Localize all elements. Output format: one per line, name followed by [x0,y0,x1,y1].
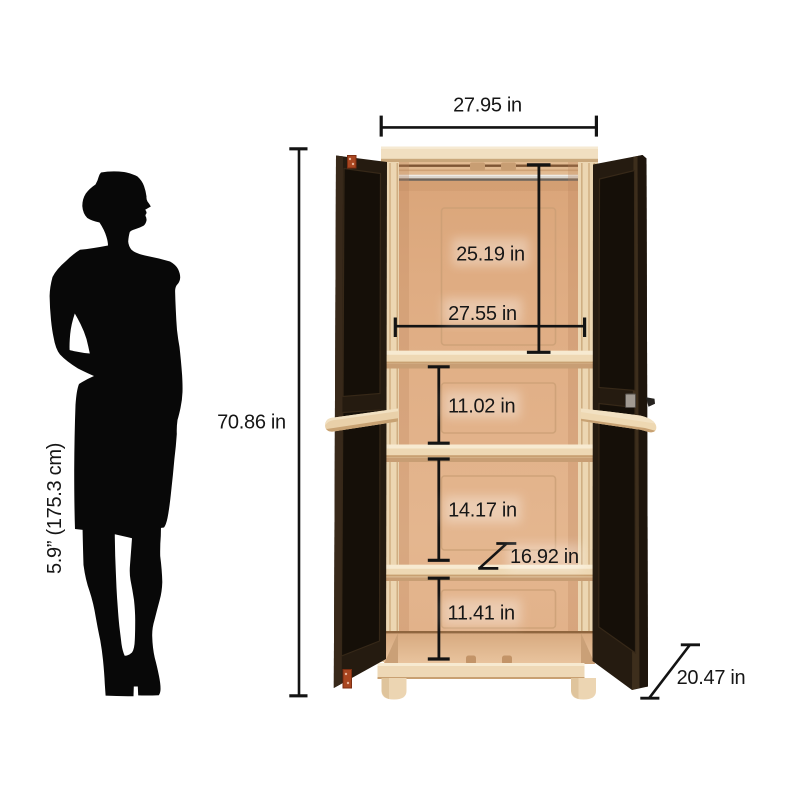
svg-text:20.47 in: 20.47 in [677,667,746,689]
svg-text:11.41 in: 11.41 in [448,603,515,625]
svg-text:16.92 in: 16.92 in [510,546,579,568]
svg-text:11.02 in: 11.02 in [448,396,515,418]
svg-text:25.19 in: 25.19 in [456,244,525,266]
svg-text:14.17 in: 14.17 in [448,500,517,522]
svg-text:5.9” (175.3 cm): 5.9” (175.3 cm) [44,443,66,574]
svg-text:27.95 in: 27.95 in [453,95,522,117]
svg-text:70.86 in: 70.86 in [217,412,286,434]
svg-text:27.55 in: 27.55 in [448,303,517,325]
